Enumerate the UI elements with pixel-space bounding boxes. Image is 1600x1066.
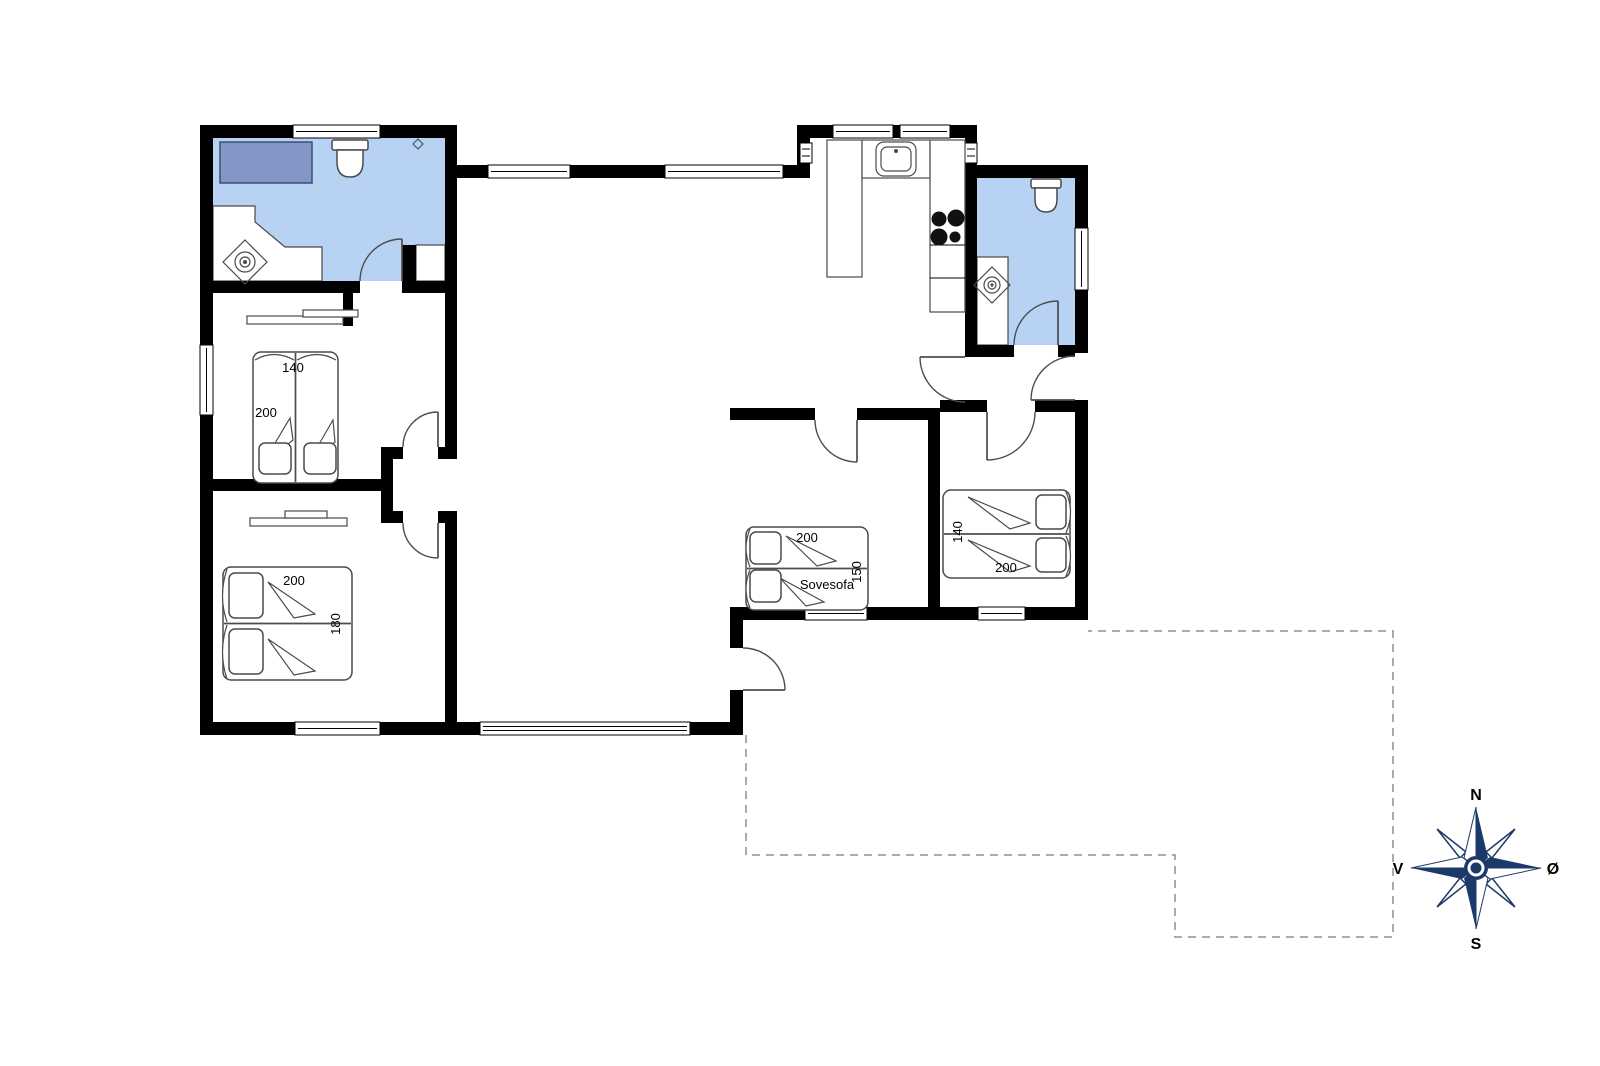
bed-bedroom1: 140 200 — [253, 352, 338, 483]
bed3-length-label: 200 — [995, 560, 1017, 575]
window-kitchen-side-east — [965, 143, 977, 163]
wall-alcove-top-right-stub — [438, 447, 457, 459]
wall-bedroom3-north-right — [1035, 400, 1075, 412]
door-sofaroom — [815, 408, 857, 462]
compass-center-core — [1471, 863, 1482, 874]
door-hallway — [920, 357, 965, 402]
pillow — [1036, 538, 1066, 572]
wall-exterior-top-right — [977, 165, 1088, 178]
pillow — [304, 443, 336, 474]
window-living-north-2 — [665, 165, 783, 178]
door-terrace — [730, 648, 785, 690]
pillow — [259, 443, 291, 474]
pillow — [750, 532, 781, 564]
window-bedroom3-south — [978, 607, 1025, 620]
sink-icon — [876, 142, 916, 176]
bedroom2-wardrobe-2 — [285, 511, 327, 518]
sofabed-length-label: 200 — [796, 530, 818, 545]
bed2-width-label: 180 — [328, 613, 343, 635]
window-kitchen-north-1 — [833, 125, 893, 138]
bed3-width-label: 140 — [950, 521, 965, 543]
bed1-length-label: 200 — [255, 405, 277, 420]
window-bedroom2-south — [295, 722, 380, 735]
wall-bath2-south-right — [1058, 345, 1075, 357]
window-kitchen-north-2 — [900, 125, 950, 138]
terrace-outline — [746, 631, 1393, 937]
sofabed-width-label: 150 — [849, 561, 864, 583]
bathroom1-cabinet — [416, 245, 445, 281]
window-bedroom1-west — [200, 345, 213, 415]
kitchen — [827, 140, 965, 312]
wall-bath1-door-stub — [402, 245, 416, 283]
kitchen-counter-left — [827, 140, 862, 277]
pillow — [1036, 495, 1066, 529]
door-bedroom3 — [987, 400, 1035, 460]
wall-sofaroom-north-left — [730, 408, 815, 420]
door-bedroom2 — [403, 511, 438, 558]
kitchen-counter-right — [930, 140, 965, 312]
sofabed-name-label: Sovesofa — [800, 577, 855, 592]
wall-leftwing-east-upper — [445, 138, 457, 447]
bed1-width-label: 140 — [282, 360, 304, 375]
pillow — [229, 573, 263, 618]
compass-west-label: V — [1393, 861, 1404, 878]
wall-bath1-south-left — [200, 281, 360, 293]
door-entrance — [1031, 353, 1088, 400]
compass-south-label: S — [1471, 936, 1482, 953]
window-bathroom1-north — [293, 125, 380, 138]
wall-leftwing-east-lower — [445, 511, 457, 722]
pillow — [750, 570, 781, 602]
wall-exterior-left — [200, 125, 213, 735]
floorplan-canvas: 140 200 200 180 200 Sovesofa 150 140 — [0, 0, 1600, 1066]
wall-alcove-bottom-left-stub — [381, 511, 403, 523]
window-living-north-1 — [488, 165, 570, 178]
bathroom2-vanity-counter — [977, 257, 1008, 345]
pillow — [229, 629, 263, 674]
window-living-south-large — [480, 722, 690, 735]
window-bathroom2-east — [1075, 228, 1088, 290]
compass-north-label: N — [1470, 787, 1482, 804]
wall-sofaroom-bedroom3-divider — [928, 408, 940, 620]
wall-bath2-south-left — [965, 345, 1014, 357]
door-bedroom1 — [403, 412, 438, 459]
window-kitchen-side-west — [800, 143, 812, 163]
shower-mat — [220, 142, 312, 183]
wall-sofaroom-north-right — [857, 408, 940, 420]
bed-sofaroom: 200 Sovesofa 150 — [746, 527, 868, 610]
compass-rose: N S V Ø — [1393, 787, 1560, 953]
bedroom2-wardrobe — [250, 518, 347, 526]
compass-east-label: Ø — [1547, 861, 1559, 878]
bedroom1-wardrobe-2 — [303, 310, 358, 317]
bed-bedroom3: 140 200 — [943, 490, 1071, 578]
bed-bedroom2: 200 180 — [223, 567, 353, 680]
bed2-length-label: 200 — [283, 573, 305, 588]
